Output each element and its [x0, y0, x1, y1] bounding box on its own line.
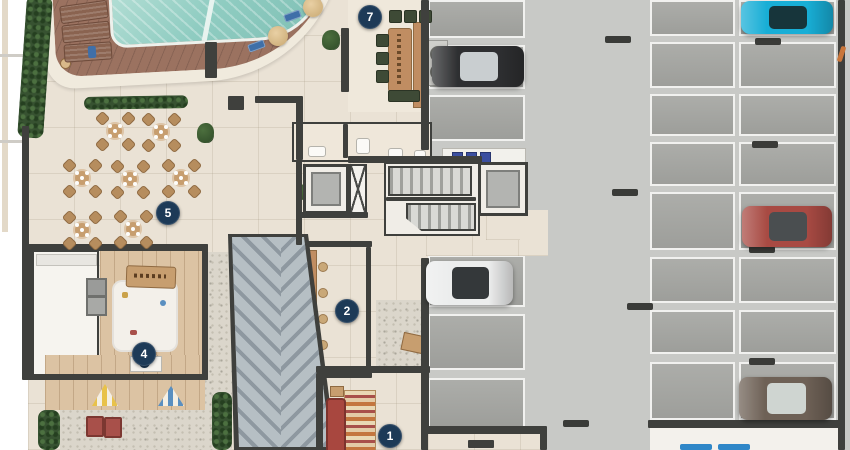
table-top — [172, 169, 190, 187]
floor-marker-1[interactable]: 1 — [378, 424, 402, 448]
dining-table — [143, 114, 179, 150]
wall-room4-left — [26, 244, 33, 380]
parking-stall — [650, 362, 735, 420]
wall-garage-boundary-upper — [421, 0, 429, 150]
floor-marker-5[interactable]: 5 — [156, 201, 180, 225]
elevator-cab — [486, 170, 520, 208]
wall-room4-bottom — [26, 374, 208, 380]
wall-garage-bottom-left — [428, 426, 546, 434]
toy — [130, 330, 137, 335]
parking-stall — [650, 192, 735, 250]
table-top — [121, 170, 139, 188]
dining-table — [163, 160, 199, 196]
gourmet-chair — [376, 52, 389, 65]
parking-stall — [650, 94, 735, 136]
brown-car — [739, 377, 832, 420]
floor-plan-canvas: 75241 — [0, 0, 850, 450]
elevator-shaft-x — [349, 164, 367, 214]
site-edge-line — [2, 0, 8, 232]
wall-lounge-left — [316, 373, 323, 450]
parking-stall — [428, 0, 525, 38]
car-body-sheen — [432, 46, 524, 87]
restroom-fixture — [356, 138, 370, 154]
car-body-sheen — [742, 206, 832, 247]
gourmet-chair — [376, 70, 389, 83]
amenity-elevator — [303, 164, 349, 214]
umbrella — [268, 26, 288, 46]
parking-stall — [650, 310, 735, 354]
table-top — [106, 122, 124, 140]
wall-pool-right — [205, 42, 217, 78]
parking-stall — [739, 94, 836, 136]
restroom-wall — [343, 124, 348, 158]
parking-stall — [739, 142, 836, 186]
wall-corridor-v — [296, 98, 303, 160]
kitchen-counter — [36, 254, 97, 266]
dining-table — [97, 113, 133, 149]
gourmet-table-runner — [397, 34, 401, 84]
fridge — [86, 278, 107, 297]
plant-area7 — [322, 30, 340, 50]
car-body-sheen — [426, 261, 513, 305]
table-top — [73, 169, 91, 187]
car-body-sheen — [739, 377, 832, 420]
garage-elevator — [478, 162, 528, 216]
wall-area7-left — [341, 28, 349, 92]
wheel-stop — [755, 38, 781, 45]
wheel-stop — [752, 141, 778, 148]
blue-mat — [680, 444, 712, 450]
wall-garage-right — [838, 0, 845, 450]
gourmet-chair — [389, 10, 402, 23]
blue-mat — [718, 444, 750, 450]
stair-divider — [386, 197, 476, 201]
parking-stall — [739, 257, 836, 303]
lounger-towel — [88, 46, 97, 59]
gourmet-chair — [404, 10, 417, 23]
hedge-terrace — [84, 95, 188, 110]
parking-stall — [650, 0, 735, 36]
toy — [160, 300, 166, 306]
wheel-stop — [749, 358, 775, 365]
wall-stairs-top — [348, 156, 482, 163]
plant-terrace — [197, 123, 214, 143]
wheel-stop — [749, 246, 775, 253]
entry-gate — [468, 440, 494, 448]
red-car — [742, 206, 832, 247]
table-top — [73, 221, 91, 239]
wall-room2-corridor — [296, 160, 302, 245]
parking-stall — [739, 42, 836, 88]
wall-elev-bottom — [300, 212, 368, 218]
floor-marker-7[interactable]: 7 — [358, 5, 382, 29]
floor-marker-2[interactable]: 2 — [335, 299, 359, 323]
wall-block — [228, 96, 244, 110]
parking-stall — [650, 257, 735, 303]
cyan-car — [741, 1, 833, 34]
crate-table — [330, 386, 344, 397]
dining-table — [64, 212, 100, 248]
parking-stall — [428, 314, 525, 370]
table-top — [124, 220, 142, 238]
parking-stall — [428, 378, 525, 428]
gourmet-bench — [388, 90, 420, 102]
patio-chair — [86, 416, 104, 437]
stair-flight-upper — [388, 166, 472, 196]
room2-wall-right — [366, 247, 371, 378]
wheel-stop — [612, 189, 638, 196]
restroom-fixture — [308, 146, 326, 157]
parking-stall — [650, 142, 735, 186]
patio-chair — [104, 417, 122, 438]
wheel-stop — [627, 303, 653, 310]
elevator-cab — [311, 172, 341, 206]
wall-bottom-right-room — [648, 420, 840, 428]
white-car — [426, 261, 513, 305]
dining-table — [64, 160, 100, 196]
table-top — [152, 123, 170, 141]
wheel-stop — [563, 420, 589, 427]
gourmet-chair — [376, 34, 389, 47]
stair-flight-lower — [406, 203, 476, 231]
dining-table — [115, 211, 151, 247]
floor-marker-4[interactable]: 4 — [132, 342, 156, 366]
dining-table — [112, 161, 148, 197]
wall-lounge-top — [316, 366, 430, 373]
toy — [122, 292, 128, 298]
wall-room4-right — [202, 244, 208, 380]
hedge-bottom-left — [38, 410, 60, 450]
fridge — [86, 296, 107, 316]
sofa — [326, 398, 346, 450]
parking-stall — [428, 95, 525, 141]
lounge-rug — [344, 390, 376, 450]
black-car — [432, 46, 524, 87]
parking-stall — [650, 42, 735, 88]
wall-garage-bottom-v — [540, 426, 547, 450]
parking-stall — [739, 310, 836, 354]
elevator-landing — [486, 216, 520, 240]
car-body-sheen — [741, 1, 833, 34]
wheel-stop — [605, 36, 631, 43]
